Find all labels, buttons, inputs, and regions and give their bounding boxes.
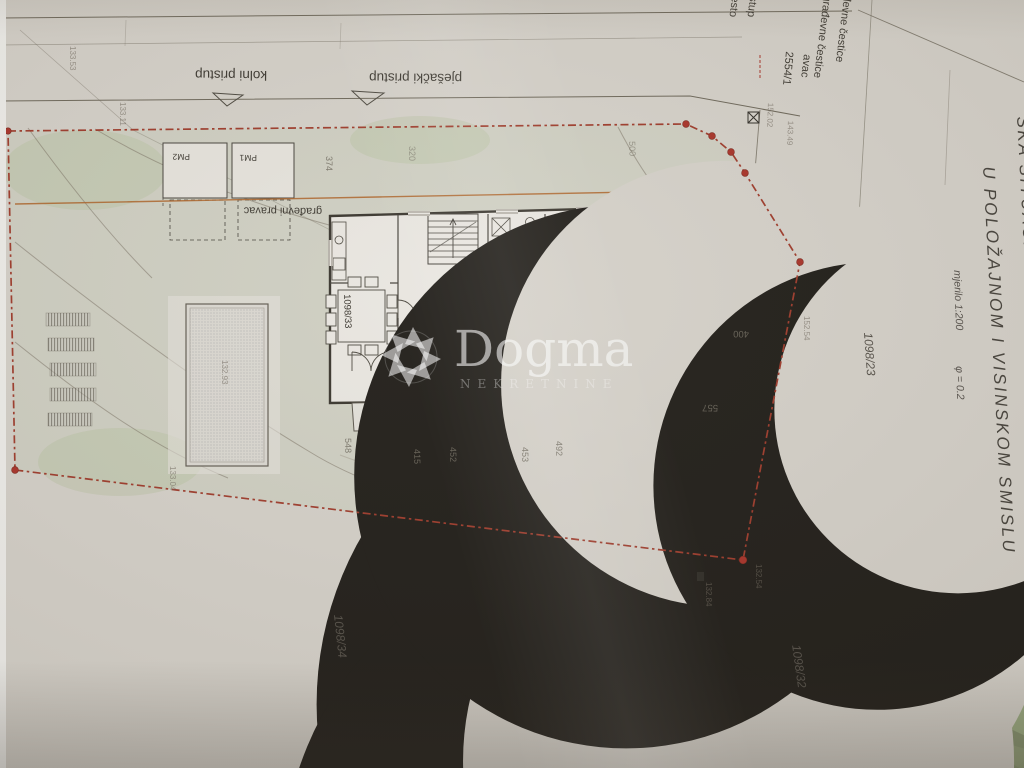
pool: [168, 296, 280, 474]
parcel-number-label: 1098/23: [862, 332, 877, 376]
elevation-label: 132.93: [220, 360, 228, 384]
elevation-label: 152.54: [802, 316, 810, 340]
road-access-label: pješački pristup: [369, 71, 462, 85]
dimension-label: 492: [554, 441, 563, 456]
dimension-label: 557: [702, 402, 718, 412]
parcel-number-label: 2554/1: [780, 51, 794, 85]
elevation-label: 132.84: [704, 582, 712, 606]
elevation-label: 152.02: [765, 103, 774, 128]
legend-fragment-label: stup: [745, 0, 758, 18]
dimension-label: 400: [733, 328, 749, 338]
site-annotation-label: PM2: [173, 152, 191, 161]
dimension-label: 452: [448, 447, 457, 462]
phi-note: φ = 0.2: [954, 366, 966, 400]
dimension-label: 320: [407, 146, 416, 161]
legend-fragment-label: esto: [727, 0, 740, 18]
scale-label: mjerilo 1:200: [952, 270, 965, 330]
parcel-number-label: 1098/33: [342, 294, 353, 329]
elevation-label: 132.54: [754, 564, 762, 588]
road-access-label: kolni pristup: [195, 68, 267, 82]
dimension-label: 415: [412, 449, 421, 464]
elevation-label: 133.04: [168, 466, 176, 490]
site-annotation-label: građevni pravac: [244, 204, 322, 216]
watermark: Dogma NEKRETNINE: [378, 324, 633, 391]
watermark-subtitle: NEKRETNINE: [460, 377, 633, 391]
watermark-name: Dogma: [454, 324, 633, 374]
dimension-label: 374: [324, 156, 333, 171]
dogma-logo-icon: [378, 324, 444, 390]
dimension-label: 548: [343, 438, 352, 453]
dimension-label: 500: [627, 141, 637, 156]
elevation-label: 133.53: [68, 46, 76, 70]
photo-edge-strip: [0, 0, 6, 768]
site-plan-photo: Dogma NEKRETNINE SKA SITUACIJA STVARNOG …: [0, 0, 1024, 768]
dimension-label: 453: [520, 447, 529, 462]
elevation-label: 133.11: [118, 102, 126, 126]
site-annotation-label: PM1: [240, 153, 258, 162]
elevation-label: 143.49: [785, 121, 794, 146]
legend-fragment-label: avac: [798, 54, 812, 78]
